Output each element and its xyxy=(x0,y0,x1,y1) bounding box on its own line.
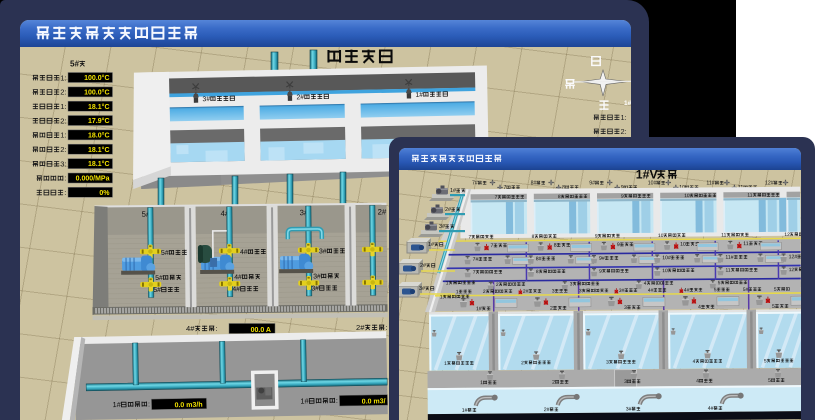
svg-text::: : xyxy=(385,323,387,332)
svg-text::: : xyxy=(64,188,66,197)
svg-text:3:: 3: xyxy=(60,159,66,168)
svg-text:2: 2 xyxy=(483,289,486,295)
svg-text:1#: 1# xyxy=(112,400,121,409)
svg-text:3: 3 xyxy=(624,305,627,311)
svg-text:7#: 7# xyxy=(472,181,478,187)
svg-text:9: 9 xyxy=(595,233,598,239)
svg-text:5: 5 xyxy=(774,287,777,293)
svg-text:11: 11 xyxy=(721,232,726,238)
svg-text:0.0 m3/: 0.0 m3/ xyxy=(362,398,386,405)
svg-text:10: 10 xyxy=(680,242,686,248)
svg-text::: : xyxy=(64,174,66,183)
svg-text:100.0°C: 100.0°C xyxy=(84,74,109,82)
svg-text:4#: 4# xyxy=(232,286,240,293)
svg-text:12#: 12# xyxy=(765,181,774,187)
svg-text:18.0°C: 18.0°C xyxy=(88,132,109,140)
svg-text:2#: 2# xyxy=(420,263,426,269)
svg-text:7: 7 xyxy=(468,234,471,240)
svg-text:12#: 12# xyxy=(789,254,798,260)
svg-text:1#: 1# xyxy=(428,242,434,248)
svg-text:1:: 1: xyxy=(60,73,66,82)
svg-text:2#: 2# xyxy=(356,323,365,332)
svg-text:7#: 7# xyxy=(473,257,479,263)
svg-text:9: 9 xyxy=(599,269,602,275)
svg-text:3: 3 xyxy=(570,281,573,287)
svg-text:3#: 3# xyxy=(419,286,425,292)
svg-text:1:: 1: xyxy=(60,102,66,111)
svg-text:2: 2 xyxy=(552,380,555,386)
svg-text:7: 7 xyxy=(495,195,498,201)
svg-text:9#: 9# xyxy=(589,181,595,187)
svg-text:4#: 4# xyxy=(708,406,714,412)
svg-text:3: 3 xyxy=(624,379,627,385)
svg-text:2#: 2# xyxy=(378,207,387,216)
svg-text:12: 12 xyxy=(784,232,790,238)
svg-text:11: 11 xyxy=(747,193,752,199)
svg-text:5: 5 xyxy=(718,280,721,286)
svg-text:12: 12 xyxy=(789,267,795,273)
svg-text:1: 1 xyxy=(444,361,447,367)
svg-text:11: 11 xyxy=(743,241,749,247)
svg-text:8: 8 xyxy=(554,243,557,249)
svg-text:3#: 3# xyxy=(319,248,327,255)
svg-text:9: 9 xyxy=(617,242,620,248)
svg-text:1#: 1# xyxy=(300,396,309,405)
svg-text:5#: 5# xyxy=(70,59,80,68)
svg-text:1: 1 xyxy=(440,294,443,300)
svg-text:11#: 11# xyxy=(725,255,733,261)
svg-text:00.0 A: 00.0 A xyxy=(251,327,271,334)
svg-text:3#: 3# xyxy=(626,406,632,412)
svg-text:8: 8 xyxy=(558,194,561,200)
svg-text:8: 8 xyxy=(536,269,539,275)
svg-text:9#: 9# xyxy=(599,256,605,262)
svg-text:3#: 3# xyxy=(202,96,210,103)
svg-text:2: 2 xyxy=(521,360,524,366)
svg-text:4#: 4# xyxy=(234,274,242,281)
svg-text:3#: 3# xyxy=(619,288,625,294)
svg-text:4#: 4# xyxy=(240,249,248,256)
svg-text:8: 8 xyxy=(532,234,535,240)
svg-text:2:: 2: xyxy=(60,116,66,125)
svg-text:2: 2 xyxy=(496,282,499,288)
svg-text:5: 5 xyxy=(764,358,767,364)
svg-text:5: 5 xyxy=(768,378,771,384)
svg-text:17.9°C: 17.9°C xyxy=(88,117,109,125)
svg-text:11#: 11# xyxy=(706,181,714,187)
svg-text:9: 9 xyxy=(621,194,624,200)
svg-text:2:: 2: xyxy=(60,145,66,154)
svg-text:5: 5 xyxy=(772,304,775,310)
svg-text:0.000/MPa: 0.000/MPa xyxy=(76,176,110,183)
svg-text:4: 4 xyxy=(693,359,696,365)
svg-text:1: 1 xyxy=(456,289,459,295)
svg-text:3: 3 xyxy=(606,360,609,366)
svg-text:11: 11 xyxy=(725,268,730,274)
svg-text:4#: 4# xyxy=(684,287,690,293)
svg-text:2#: 2# xyxy=(544,407,550,413)
svg-text:3: 3 xyxy=(579,288,582,294)
svg-text:2#: 2# xyxy=(523,289,529,295)
svg-text:2:: 2: xyxy=(60,88,66,97)
svg-text:7: 7 xyxy=(473,270,476,276)
svg-text:4: 4 xyxy=(696,378,699,384)
svg-text:0%: 0% xyxy=(99,190,110,197)
svg-text:10#: 10# xyxy=(648,181,657,187)
svg-text:10#: 10# xyxy=(662,255,671,261)
svg-text:10: 10 xyxy=(658,233,664,239)
svg-text:5#: 5# xyxy=(743,287,749,293)
svg-text:4#: 4# xyxy=(186,324,195,333)
svg-text:7: 7 xyxy=(490,243,493,249)
svg-text:4: 4 xyxy=(698,304,701,310)
svg-text:4#: 4# xyxy=(648,288,654,294)
svg-text:100.0°C: 100.0°C xyxy=(84,89,109,97)
svg-text:8#: 8# xyxy=(531,181,537,187)
svg-text:2:: 2: xyxy=(621,127,627,136)
svg-text:5#: 5# xyxy=(155,275,163,282)
svg-text:3#: 3# xyxy=(439,224,445,230)
svg-text:8#: 8# xyxy=(536,256,542,262)
svg-text::: : xyxy=(215,324,217,333)
svg-text:1#: 1# xyxy=(415,92,423,99)
svg-text:1#: 1# xyxy=(462,408,468,414)
svg-text:5: 5 xyxy=(714,287,717,293)
svg-text:18.1°C: 18.1°C xyxy=(88,146,109,154)
svg-text:10: 10 xyxy=(684,193,690,199)
svg-text:1#: 1# xyxy=(476,306,482,312)
svg-text:3#: 3# xyxy=(313,273,321,280)
svg-text:3#: 3# xyxy=(311,285,319,292)
svg-text:2#: 2# xyxy=(296,94,304,101)
svg-text:4: 4 xyxy=(644,281,647,287)
svg-text:18.1°C: 18.1°C xyxy=(88,160,109,168)
svg-text:2: 2 xyxy=(550,306,553,312)
svg-text::: : xyxy=(148,399,150,408)
svg-text:3: 3 xyxy=(552,288,555,294)
svg-text:18.1°C: 18.1°C xyxy=(88,103,109,111)
svg-text:1:: 1: xyxy=(621,113,627,122)
svg-text::: : xyxy=(336,396,338,405)
svg-text:10: 10 xyxy=(662,268,668,274)
svg-text:5#: 5# xyxy=(161,250,169,257)
svg-text:1#: 1# xyxy=(450,188,456,194)
svg-text:1#: 1# xyxy=(624,100,631,107)
svg-text:0.0 m3/h: 0.0 m3/h xyxy=(174,402,202,410)
svg-text:1:: 1: xyxy=(60,131,66,140)
svg-text:2#: 2# xyxy=(445,207,451,213)
svg-text:1: 1 xyxy=(446,280,449,286)
svg-text:5#: 5# xyxy=(153,287,161,294)
svg-text:1: 1 xyxy=(480,380,483,386)
